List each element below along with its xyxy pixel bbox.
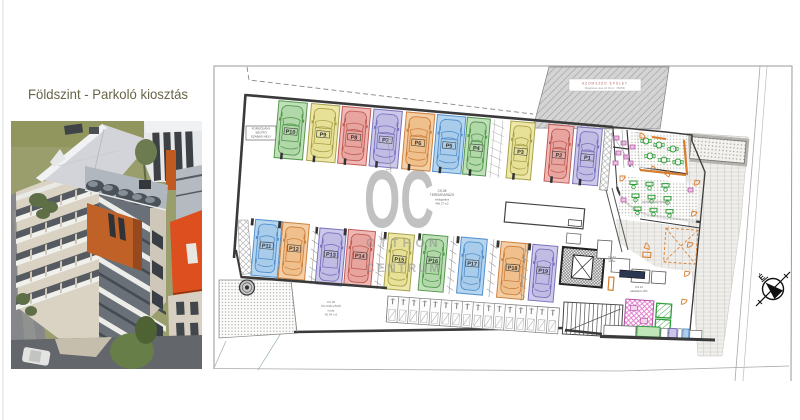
svg-text:P13: P13: [326, 252, 336, 259]
svg-text:P19: P19: [538, 268, 548, 275]
svg-text:P14: P14: [355, 253, 366, 260]
svg-text:SZOMSZÉD ÉPÜLET: SZOMSZÉD ÉPÜLET: [582, 81, 628, 86]
svg-text:Magdolna utca 42 (hrsz : 35253: Magdolna utca 42 (hrsz : 35253): [585, 86, 625, 90]
svg-text:56.94 m2: 56.94 m2: [325, 313, 338, 317]
svg-text:OTTHON: OTTHON: [366, 236, 442, 250]
svg-text:P3: P3: [517, 149, 524, 156]
svg-text:P2: P2: [555, 153, 562, 160]
svg-text:CENTRUM: CENTRUM: [366, 261, 441, 275]
svg-text:P8: P8: [350, 135, 357, 142]
svg-text:akadálym.WC: akadálym.WC: [630, 289, 647, 293]
svg-text:P10: P10: [285, 129, 295, 136]
svg-text:P17: P17: [467, 261, 477, 268]
svg-text:P9: P9: [319, 132, 326, 139]
svg-text:Földszint - Parkoló kiosztás: Földszint - Parkoló kiosztás: [28, 86, 188, 102]
svg-text:466.27 m2: 466.27 m2: [435, 202, 449, 206]
svg-text:P11: P11: [262, 243, 272, 250]
svg-text:P12: P12: [289, 246, 299, 253]
svg-text:OC: OC: [364, 154, 434, 245]
svg-text:P6: P6: [414, 141, 421, 148]
svg-text:SZABAD HELY: SZABAD HELY: [251, 134, 271, 138]
svg-text:P5: P5: [445, 143, 452, 150]
svg-text:előtér: előtér: [609, 259, 616, 263]
svg-text:P1: P1: [584, 155, 591, 162]
svg-text:P18: P18: [507, 265, 517, 272]
